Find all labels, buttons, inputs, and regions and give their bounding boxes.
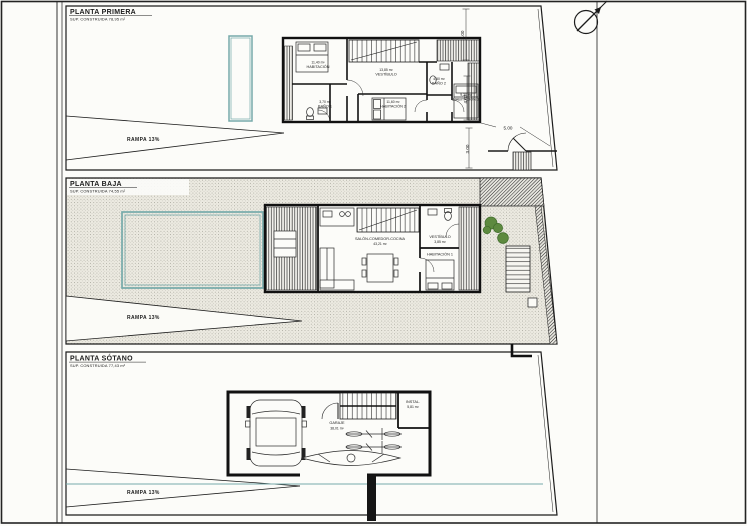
room-area: 3,85 m² bbox=[434, 240, 446, 244]
garden-detail bbox=[528, 298, 537, 307]
plan-title-primera: PLANTA PRIMERA bbox=[70, 9, 136, 16]
room-area: 5,81 m² bbox=[407, 405, 419, 409]
ramp-label-primera: RAMPA 13% bbox=[127, 137, 160, 143]
porch-hatch-east bbox=[459, 207, 479, 290]
terrace-table-icon bbox=[274, 231, 296, 257]
room-area: 4,50 m² bbox=[433, 77, 445, 81]
room-label-instal: INSTAL. bbox=[406, 400, 420, 404]
balcony-hatch-east bbox=[468, 63, 479, 120]
porch-steps-hatch bbox=[513, 152, 531, 170]
stairs-icon-primera bbox=[349, 40, 419, 62]
plan-sotano: PLANTA SÓTANO SUP. CONSTRUIDA 77,43 m² R… bbox=[66, 344, 557, 521]
ramp-label-sotano: RAMPA 13% bbox=[127, 490, 160, 496]
driveway-wall-section bbox=[367, 475, 376, 521]
dim-low: 3.00 bbox=[465, 144, 470, 153]
garage: INSTAL. 5,81 m² GARAJE 38,01 m² bbox=[228, 392, 430, 478]
plan-primera: PLANTA PRIMERA SUP. CONSTRUIDA 78,95 m² … bbox=[66, 6, 557, 170]
building-primera bbox=[283, 38, 480, 122]
plan-subtitle-primera: SUP. CONSTRUIDA 78,95 m² bbox=[70, 17, 126, 22]
room-area: 13,85 m² bbox=[379, 68, 393, 72]
building-baja bbox=[265, 205, 480, 292]
plan-subtitle-baja: SUP. CONSTRUIDA 74,55 m² bbox=[70, 189, 126, 194]
plan-baja: PLANTA BAJA SUP. CONSTRUIDA 74,55 m² RAM… bbox=[66, 178, 557, 344]
room-label-habitacion2: HABITACIÓN 2 bbox=[380, 104, 406, 109]
balcony-hatch-ne bbox=[437, 40, 479, 61]
room-label-bano1: BAÑO 1 bbox=[318, 104, 332, 109]
stairs-icon-baja bbox=[357, 208, 419, 232]
room-label-vestibulo-baja: VESTÍBULO bbox=[429, 235, 450, 239]
floor-plan-svg: PLANTA PRIMERA SUP. CONSTRUIDA 78,95 m² … bbox=[0, 0, 747, 526]
plan-title-sotano: PLANTA SÓTANO bbox=[70, 354, 133, 363]
plan-subtitle-sotano: SUP. CONSTRUIDA 77,43 m² bbox=[70, 363, 126, 368]
dim-width: 5.00 bbox=[504, 126, 513, 131]
room-area: 11,40 m² bbox=[311, 61, 325, 65]
room-area: 3,70 m² bbox=[319, 100, 331, 104]
deck-hatch-west bbox=[285, 46, 293, 120]
plan-title-baja: PLANTA BAJA bbox=[70, 181, 122, 188]
garden-steps-icon bbox=[506, 246, 530, 292]
room-label-garaje: GARAJE bbox=[329, 421, 345, 425]
ramp-label-baja: RAMPA 13% bbox=[127, 315, 160, 321]
room-area: 43,21 m² bbox=[373, 242, 387, 246]
room-label-salon: SALÓN-COMEDOR-COCINA bbox=[355, 236, 405, 241]
dim-mid: 4.07 bbox=[463, 94, 468, 103]
room-area: 11,60 m² bbox=[386, 100, 400, 104]
hedge-hatch-top bbox=[480, 178, 544, 206]
garage-door-opening bbox=[300, 472, 367, 478]
room-label-habitacion: HABITACIÓN bbox=[307, 64, 330, 69]
room-label-bano2: BAÑO 2 bbox=[432, 81, 446, 86]
room-area: 38,01 m² bbox=[330, 427, 344, 431]
drawing-sheet: PLANTA PRIMERA SUP. CONSTRUIDA 78,95 m² … bbox=[0, 0, 747, 526]
dim-top: 3.00 bbox=[460, 30, 465, 39]
room-label-habitacion1: HABITACIÓN 1 bbox=[427, 252, 453, 257]
room-label-vestibulo: VESTÍBULO bbox=[375, 73, 396, 77]
